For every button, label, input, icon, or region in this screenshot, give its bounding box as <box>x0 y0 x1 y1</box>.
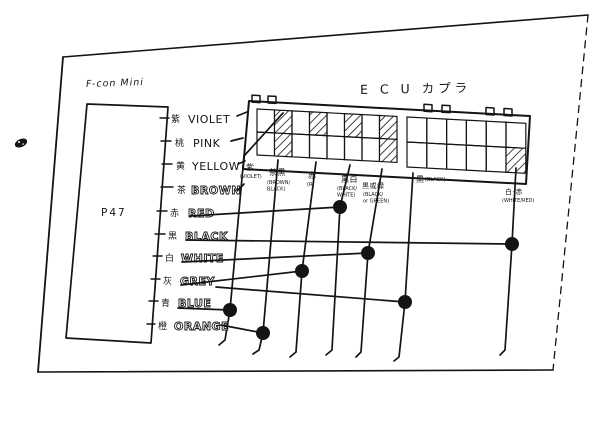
diagram-canvas: 紫(VIOLET)茶黒(BROWN/BLACK)赤(R)黒白(BLACK/WHI… <box>0 0 600 421</box>
ecu-pin-cell-marked <box>345 114 363 138</box>
ecu-pin-cell <box>362 115 380 139</box>
wire-name-yellow: YELLOW <box>191 160 240 173</box>
ecu-pin-label-3: 赤 <box>308 171 317 180</box>
ecu-pin-sublabel-1: (VIOLET) <box>240 174 262 180</box>
ecu-pin-cell <box>292 111 310 135</box>
ecu-pin-cell <box>327 113 345 137</box>
wire-kanji-black: 黒 <box>168 231 177 242</box>
ecu-pin-cell <box>466 120 486 146</box>
ecu-pin-sublabel-5: or GREEN) <box>363 199 389 205</box>
wire-name-brown: BROWN <box>191 184 241 197</box>
ecu-pin-cell <box>257 132 275 156</box>
ecu-pin-sublabel-2: (BROWN/ <box>267 180 290 186</box>
ecu-pin-cell-marked <box>380 138 398 162</box>
ecu-pin-sublabel-5: (BLACK/ <box>363 192 383 198</box>
wire-name-white: WHITE <box>181 252 224 265</box>
ecu-connector-title: E C U カプラ <box>360 77 472 98</box>
junction-dot-black <box>505 237 519 251</box>
ecu-pin-line-3 <box>290 162 316 357</box>
ecu-pin-cell <box>292 134 310 158</box>
ecu-pin-cell-marked <box>275 133 293 157</box>
ecu-pin-cell <box>466 145 486 171</box>
wire-kanji-orange: 橙 <box>158 320 167 332</box>
ecu-pin-cell <box>486 121 506 147</box>
wire-name-red: RED <box>188 207 215 220</box>
wire-kanji-yellow: 黄 <box>176 160 185 172</box>
ecu-pin-sublabel-4: WHITE) <box>337 193 355 199</box>
wire-name-violet: VIOLET <box>188 113 230 126</box>
junction-dot-blue <box>398 295 412 309</box>
page-border-bottom <box>38 370 553 372</box>
ecu-pin-label-7: 白-赤 <box>505 187 523 196</box>
ecu-pin-cell <box>447 119 467 145</box>
ecu-pin-cell <box>427 143 447 169</box>
wire-line-blue <box>216 287 405 302</box>
wire-line-black <box>186 240 512 244</box>
ecu-pin-cell <box>506 122 526 148</box>
ecu-pin-label-4: 黒白 <box>341 174 358 184</box>
wire-kanji-white: 白 <box>165 252 174 264</box>
junction-dot-white <box>361 246 375 260</box>
wire-line-violet <box>237 112 247 116</box>
ecu-pin-label-5: 黒或緑 <box>362 181 385 190</box>
unit-name-caption: F-con Mini <box>86 77 144 90</box>
junction-dot-red <box>333 200 347 214</box>
wire-name-pink: PINK <box>193 137 221 150</box>
ecu-pin-cell <box>257 109 275 133</box>
ecu-pin-sublabel-7: (WHITE/RED) <box>502 198 535 204</box>
junction-dot2-blue <box>223 303 237 317</box>
ecu-pin-cell <box>427 118 447 144</box>
ecu-pin-cell <box>345 137 363 161</box>
stamp-mark-detail <box>18 141 20 143</box>
ecu-pin-cell-marked <box>380 115 398 139</box>
ecu-pin-line-7 <box>500 168 516 355</box>
ecu-pin-label-1: 紫 <box>246 163 255 172</box>
ecu-pin-cell <box>310 135 328 159</box>
wire-name-orange: ORANGE <box>174 320 229 333</box>
ecu-pin-sublabel-3: (R) <box>307 182 314 188</box>
page-border-top <box>63 15 588 57</box>
ecu-pin-line-6 <box>394 173 413 361</box>
scanned-wiring-diagram: 紫(VIOLET)茶黒(BROWN/BLACK)赤(R)黒白(BLACK/WHI… <box>0 0 600 421</box>
wire-kanji-pink: 桃 <box>175 137 184 149</box>
ecu-pin-cell <box>362 138 380 162</box>
ecu-pin-cell <box>327 136 345 160</box>
wire-kanji-brown: 茶 <box>177 184 186 196</box>
wire-kanji-violet: 紫 <box>171 114 180 125</box>
wire-kanji-blue: 青 <box>161 297 170 309</box>
stamp-mark <box>13 137 28 150</box>
ecu-pin-sublabel-6: (BLACK) <box>425 177 445 183</box>
wire-kanji-red: 赤 <box>170 208 179 219</box>
page-border-right <box>553 15 588 370</box>
ecu-pin-sublabel-4: (BLACK/ <box>337 186 357 192</box>
ecu-pin-label-6: 黒 <box>416 175 425 184</box>
ecu-pin-cell <box>407 142 427 168</box>
unit-box <box>66 104 168 343</box>
ecu-pin-cell <box>447 144 467 170</box>
wire-kanji-grey: 灰 <box>163 275 172 287</box>
ecu-pin-cell <box>486 146 506 172</box>
stamp-mark-detail <box>22 143 24 145</box>
junction-dot-orange <box>256 326 270 340</box>
ecu-pin-sublabel-2: BLACK) <box>267 187 285 193</box>
unit-box-label: P47 <box>101 207 127 219</box>
ecu-pin-cell-marked <box>310 112 328 136</box>
wire-line-pink <box>231 138 243 141</box>
ecu-pin-label-2: 茶黒 <box>269 167 286 177</box>
junction-dot-grey <box>295 264 309 278</box>
page-border-left <box>38 57 63 372</box>
ecu-pin-cell <box>407 117 427 143</box>
